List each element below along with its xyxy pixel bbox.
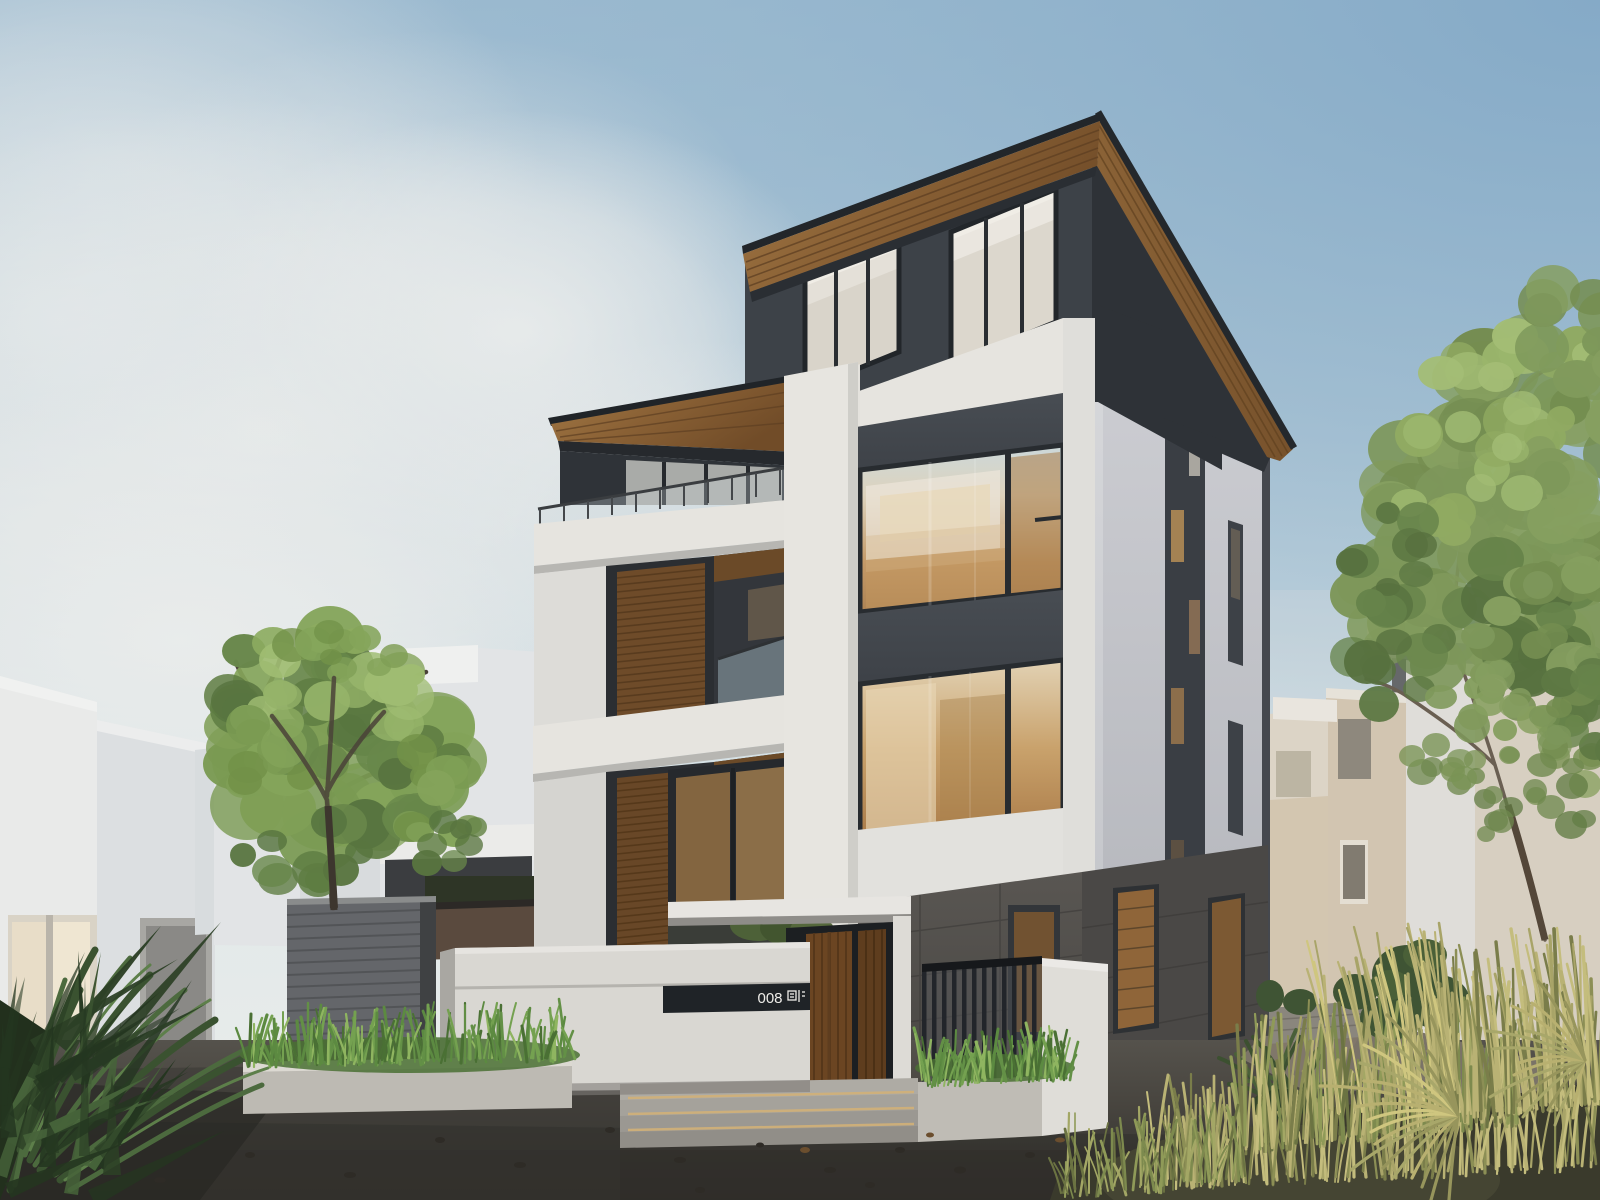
svg-text:008: 008 xyxy=(757,990,782,1007)
